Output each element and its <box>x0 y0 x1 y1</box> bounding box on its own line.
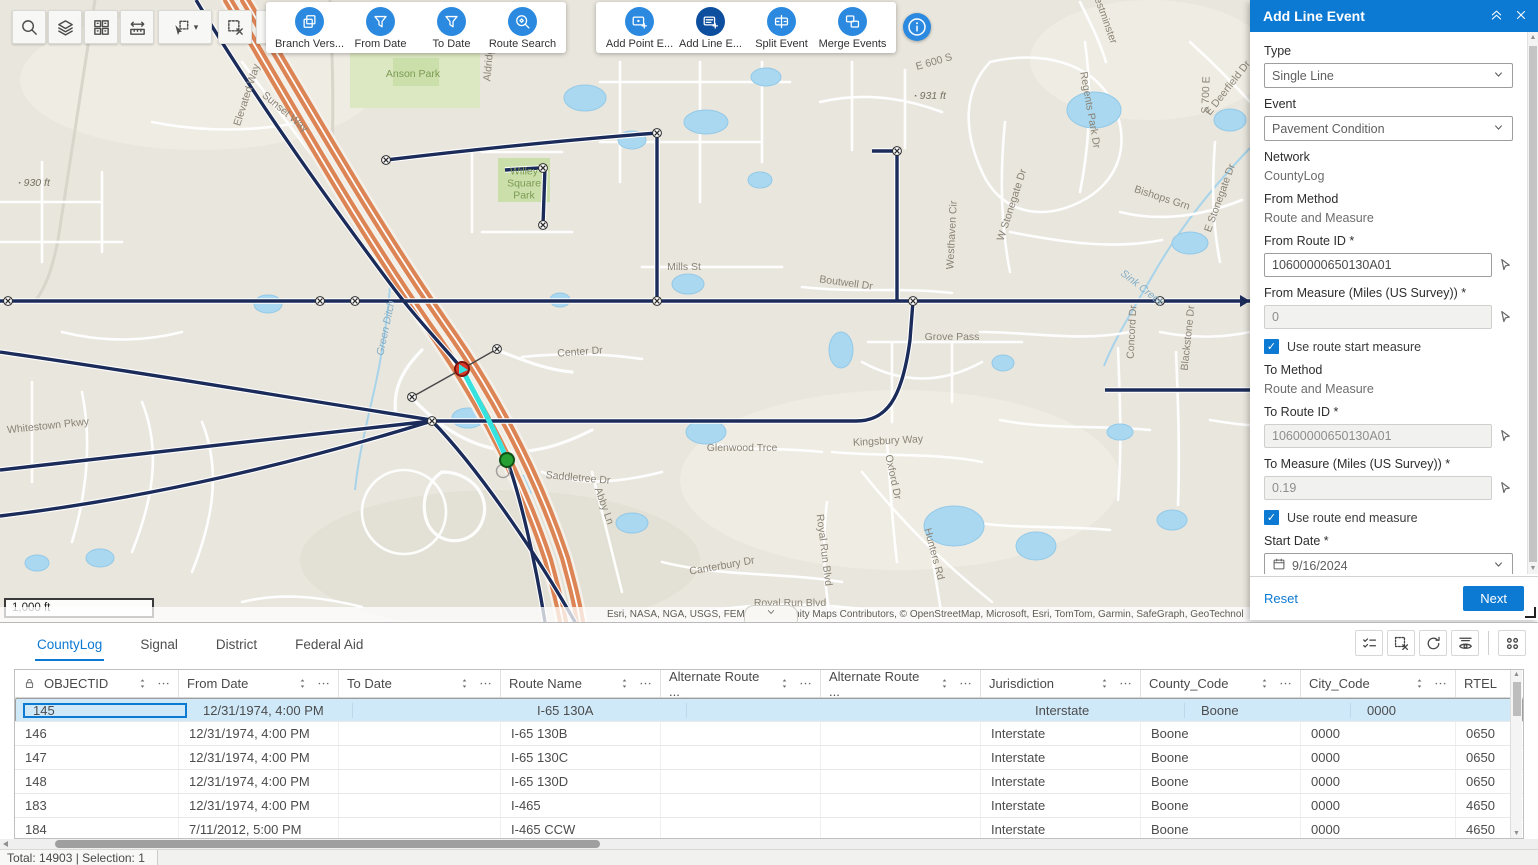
sort-icon <box>136 677 149 690</box>
panel-body: Type Single Line Event Pavement Conditio… <box>1250 32 1527 574</box>
chevron-down-icon <box>1492 121 1505 137</box>
sort-icon <box>618 677 631 690</box>
map-region[interactable]: Elevated WaySunset WayAnson ParkWilley S… <box>0 0 1250 622</box>
from-measure-input[interactable] <box>1264 305 1492 329</box>
tab-countylog[interactable]: CountyLog <box>35 625 104 661</box>
table-cell[interactable] <box>821 818 981 839</box>
table-toolbar <box>1355 630 1526 656</box>
pointer-icon <box>1497 480 1513 496</box>
table-cell[interactable] <box>661 818 821 839</box>
event-toolbar: Add Point E...Add Line E...Split EventMe… <box>596 2 896 53</box>
table-cell[interactable]: 148 <box>15 770 179 793</box>
add-line-e-button[interactable]: Add Line E... <box>675 7 746 50</box>
network-value: CountyLog <box>1264 169 1513 183</box>
table-cell[interactable]: I-65 130B <box>501 722 661 745</box>
table-cell[interactable]: 12/31/1974, 4:00 PM <box>179 722 339 745</box>
table-cell[interactable] <box>821 722 981 745</box>
table-horizontal-scrollbar[interactable] <box>0 839 1538 849</box>
layers-button[interactable] <box>48 10 82 44</box>
to-route-id-input[interactable] <box>1264 424 1492 448</box>
from-method-label: From Method <box>1264 192 1513 206</box>
reset-link[interactable]: Reset <box>1264 591 1298 606</box>
table-cell[interactable]: 147 <box>15 746 179 769</box>
tab-district[interactable]: District <box>214 625 259 661</box>
table-cell[interactable]: 12/31/1974, 4:00 PM <box>179 770 339 793</box>
add-point-event-icon <box>631 13 648 30</box>
branch-vers-button[interactable]: Branch Vers... <box>274 7 345 50</box>
to-method-label: To Method <box>1264 363 1513 377</box>
route-end-marker[interactable] <box>500 453 514 467</box>
table-cell[interactable]: Interstate <box>981 794 1141 817</box>
table-row[interactable]: 14712/31/1974, 4:00 PMI-65 130CInterstat… <box>15 746 1523 770</box>
table-cell[interactable]: 0000 <box>1301 818 1456 839</box>
add-line-event-icon <box>702 13 719 30</box>
layers-icon <box>56 18 75 37</box>
table-cell[interactable]: 12/31/1974, 4:00 PM <box>179 746 339 769</box>
table-body: 14512/31/1974, 4:00 PMI-65 130AInterstat… <box>15 698 1523 839</box>
table-cell[interactable]: 184 <box>15 818 179 839</box>
table-row[interactable]: 14612/31/1974, 4:00 PMI-65 130BInterstat… <box>15 722 1523 746</box>
caret-down-icon: ▾ <box>194 22 199 33</box>
clear-selection-button[interactable] <box>218 10 252 44</box>
close-icon <box>1514 8 1528 22</box>
clear-table-selection-icon <box>1393 635 1410 652</box>
use-route-end-measure-row: Use route end measure <box>1264 510 1513 525</box>
table-cell[interactable]: 0000 <box>1301 770 1456 793</box>
panel-title: Add Line Event <box>1263 8 1365 24</box>
use-route-start-measure-checkbox[interactable] <box>1264 339 1279 354</box>
next-button[interactable]: Next <box>1463 586 1524 611</box>
table-vscroll-thumb[interactable] <box>1513 682 1521 716</box>
from-date-filter-icon <box>372 13 389 30</box>
table-cell[interactable]: Boone <box>1191 703 1351 718</box>
collapse-icon <box>1489 7 1504 22</box>
branch-versions-icon <box>301 13 318 30</box>
collapse-panel-icon[interactable] <box>1489 7 1504 25</box>
dots-icon <box>1279 677 1292 690</box>
select-button[interactable]: ▾ <box>158 10 212 44</box>
chevron-down-icon <box>1492 68 1505 81</box>
add-point-e-button[interactable]: Add Point E... <box>604 7 675 50</box>
column-header-county-code[interactable]: County_Code <box>1141 670 1301 697</box>
table-cell[interactable] <box>339 746 501 769</box>
sort-icon <box>1098 677 1111 690</box>
select-icon <box>172 18 191 37</box>
sort-icon <box>458 677 471 690</box>
map-canvas[interactable] <box>0 0 1250 622</box>
table-row[interactable]: 18312/31/1974, 4:00 PMI-465InterstateBoo… <box>15 794 1523 818</box>
type-label: Type <box>1264 44 1513 58</box>
table-cell[interactable] <box>661 770 821 793</box>
fields-visibility-button[interactable] <box>1451 630 1479 656</box>
options-grid-icon <box>1504 635 1521 652</box>
start-date-label: Start Date * <box>1264 534 1513 548</box>
from-route-id-input[interactable] <box>1264 253 1492 277</box>
table-cell[interactable]: 12/31/1974, 4:00 PM <box>179 794 339 817</box>
measure-button[interactable] <box>120 10 154 44</box>
route-search-button[interactable]: Route Search <box>487 7 558 50</box>
route-search-icon <box>514 13 531 30</box>
table-cell[interactable]: Interstate <box>981 746 1141 769</box>
to-date-button[interactable]: To Date <box>416 7 487 50</box>
to-method-value: Route and Measure <box>1264 382 1513 396</box>
column-header-to-date[interactable]: To Date <box>339 670 501 697</box>
refresh-icon <box>1425 635 1442 652</box>
route-start-marker[interactable] <box>455 362 469 376</box>
table-cell[interactable]: I-465 CCW <box>501 818 661 839</box>
merge-events-icon <box>844 13 861 30</box>
grid-button[interactable] <box>84 10 118 44</box>
sort-icon <box>1413 677 1426 690</box>
table-cell[interactable] <box>821 746 981 769</box>
dots-icon <box>157 677 170 690</box>
table-cell[interactable] <box>661 746 821 769</box>
panel-footer: Reset Next <box>1250 576 1538 620</box>
pointer-icon <box>1497 257 1513 273</box>
table-tabs: CountyLogSignalDistrictFederal Aid <box>0 623 1538 663</box>
use-route-end-measure-checkbox[interactable] <box>1264 510 1279 525</box>
use-route-start-measure-label: Use route start measure <box>1287 340 1421 354</box>
table-cell[interactable] <box>821 770 981 793</box>
hscroll-left-arrow-icon <box>3 841 8 847</box>
dots-icon <box>799 677 812 690</box>
split-event-button[interactable]: Split Event <box>746 7 817 50</box>
filter-toolbar: Branch Vers...From DateTo DateRoute Sear… <box>266 2 566 53</box>
pick-from-route-icon[interactable] <box>1497 257 1513 273</box>
table-cell[interactable] <box>339 818 501 839</box>
table-cell[interactable] <box>339 770 501 793</box>
dots-icon <box>479 677 492 690</box>
table-vertical-scrollbar[interactable]: ▲ ▼ <box>1510 670 1522 838</box>
to-measure-label: To Measure (Miles (US Survey)) * <box>1264 457 1513 471</box>
pointer-icon <box>1497 309 1513 325</box>
lock-icon <box>23 677 36 690</box>
table-cell[interactable] <box>821 794 981 817</box>
sort-icon <box>1258 677 1271 690</box>
table-cell[interactable]: I-65 130A <box>527 703 687 718</box>
table-cell[interactable]: Boone <box>1141 722 1301 745</box>
info-icon <box>907 17 927 37</box>
network-label: Network <box>1264 150 1513 164</box>
column-header-jurisdiction[interactable]: Jurisdiction <box>981 670 1141 697</box>
to-date-filter-icon <box>443 13 460 30</box>
dots-icon <box>1434 677 1447 690</box>
table-cell[interactable] <box>339 794 501 817</box>
chevron-down-icon <box>765 606 777 618</box>
table-cell[interactable]: Interstate <box>981 770 1141 793</box>
toolbar-divider <box>1488 631 1489 655</box>
table-row[interactable]: 14512/31/1974, 4:00 PMI-65 130AInterstat… <box>15 698 1523 722</box>
event-label: Event <box>1264 97 1513 111</box>
info-button[interactable] <box>903 13 931 41</box>
dots-icon <box>1119 677 1132 690</box>
column-header-from-date[interactable]: From Date <box>179 670 339 697</box>
close-panel-icon[interactable] <box>1514 8 1528 25</box>
panel-scrollbar-thumb[interactable] <box>1529 46 1537 562</box>
table-cell[interactable]: 0000 <box>1301 794 1456 817</box>
chevron-down-icon <box>1492 558 1505 571</box>
table-header: OBJECTIDFrom DateTo DateRoute NameAltern… <box>15 670 1523 698</box>
from-route-id-label: From Route ID * <box>1264 234 1513 248</box>
dots-icon <box>317 677 330 690</box>
column-header-city-code[interactable]: City_Code <box>1301 670 1456 697</box>
table-cell[interactable]: 0000 <box>1301 722 1456 745</box>
table-row[interactable]: 1847/11/2012, 5:00 PMI-465 CCWInterstate… <box>15 818 1523 839</box>
table-cell[interactable]: Interstate <box>981 818 1141 839</box>
table-cell[interactable]: Interstate <box>981 722 1141 745</box>
table-row[interactable]: 14812/31/1974, 4:00 PMI-65 130DInterstat… <box>15 770 1523 794</box>
from-measure-label: From Measure (Miles (US Survey)) * <box>1264 286 1513 300</box>
table-cell[interactable]: 146 <box>15 722 179 745</box>
table-hscroll-thumb[interactable] <box>55 840 600 848</box>
type-select[interactable]: Single Line <box>1264 63 1513 88</box>
table-cell[interactable] <box>661 722 821 745</box>
clear-table-selection-button[interactable] <box>1387 630 1415 656</box>
table-cell[interactable]: I-465 <box>501 794 661 817</box>
split-event-icon <box>773 13 790 30</box>
chevron-down-icon <box>1492 68 1505 84</box>
dots-icon <box>959 677 972 690</box>
table-cell[interactable] <box>661 794 821 817</box>
from-method-value: Route and Measure <box>1264 211 1513 225</box>
column-header-route-name[interactable]: Route Name <box>501 670 661 697</box>
table-cell[interactable]: Boone <box>1141 746 1301 769</box>
table-cell[interactable]: 0000 <box>1301 746 1456 769</box>
table-cell[interactable]: 183 <box>15 794 179 817</box>
panel-scrollbar[interactable]: ▲ ▼ <box>1527 32 1538 574</box>
chevron-down-icon <box>1492 558 1505 574</box>
pick-to-route-icon[interactable] <box>1497 428 1513 444</box>
grid-icon <box>92 18 111 37</box>
merge-events-button[interactable]: Merge Events <box>817 7 888 50</box>
to-measure-input[interactable] <box>1264 476 1492 500</box>
use-route-end-measure-label: Use route end measure <box>1287 511 1418 525</box>
table-cell[interactable]: 145 <box>23 703 187 718</box>
fields-visibility-icon <box>1457 635 1474 652</box>
panel-header: Add Line Event <box>1250 0 1538 32</box>
attribute-table-panel: CountyLogSignalDistrictFederal Aid OBJEC… <box>0 622 1538 865</box>
column-header-alternate-route[interactable]: Alternate Route ... <box>821 670 981 697</box>
table-cell[interactable] <box>339 722 501 745</box>
chevron-down-icon <box>1492 121 1505 134</box>
search-icon <box>20 18 39 37</box>
tab-signal[interactable]: Signal <box>138 625 180 661</box>
collapse-map-chevron[interactable] <box>744 605 798 622</box>
table-cell[interactable]: 0000 <box>1357 703 1512 718</box>
show-selection-icon <box>1361 635 1378 652</box>
sort-icon <box>778 677 791 690</box>
pick-to-measure-icon[interactable] <box>1497 480 1513 496</box>
pointer-icon <box>1497 428 1513 444</box>
column-header-alternate-route[interactable]: Alternate Route ... <box>661 670 821 697</box>
table-status-bar: Total: 14903 | Selection: 1 <box>0 849 1538 865</box>
clear-selection-icon <box>226 18 245 37</box>
attribute-table: OBJECTIDFrom DateTo DateRoute NameAltern… <box>14 669 1524 839</box>
table-cell[interactable]: I-65 130D <box>501 770 661 793</box>
sort-icon <box>938 677 951 690</box>
refresh-button[interactable] <box>1419 630 1447 656</box>
search-button[interactable] <box>12 10 46 44</box>
table-cell[interactable]: Boone <box>1141 794 1301 817</box>
calendar-icon <box>1272 557 1286 574</box>
add-line-event-panel: Add Line Event Type Single Line Event Pa… <box>1250 0 1538 620</box>
table-cell[interactable]: 7/11/2012, 5:00 PM <box>179 818 339 839</box>
column-header-objectid[interactable]: OBJECTID <box>15 670 179 697</box>
show-selection-button[interactable] <box>1355 630 1383 656</box>
measure-icon <box>128 18 147 37</box>
sort-icon <box>296 677 309 690</box>
table-cell[interactable]: Boone <box>1141 818 1301 839</box>
table-cell[interactable]: 12/31/1974, 4:00 PM <box>193 703 353 718</box>
use-route-start-measure-row: Use route start measure <box>1264 339 1513 354</box>
dots-icon <box>639 677 652 690</box>
table-status-text: Total: 14903 | Selection: 1 <box>0 850 158 865</box>
start-date-picker[interactable]: 9/16/2024 <box>1264 553 1513 574</box>
pick-from-measure-icon[interactable] <box>1497 309 1513 325</box>
options-grid-button[interactable] <box>1498 630 1526 656</box>
calendar-icon <box>1272 557 1286 571</box>
tab-federal-aid[interactable]: Federal Aid <box>293 625 365 661</box>
panel-resize-handle[interactable] <box>1524 606 1536 618</box>
table-cell[interactable]: Interstate <box>1025 703 1185 718</box>
from-date-button[interactable]: From Date <box>345 7 416 50</box>
event-editor-app: Elevated WaySunset WayAnson ParkWilley S… <box>0 0 1538 865</box>
table-cell[interactable]: I-65 130C <box>501 746 661 769</box>
table-cell[interactable]: Boone <box>1141 770 1301 793</box>
to-route-id-label: To Route ID * <box>1264 405 1513 419</box>
map-attribution: Esri, NASA, NGA, USGS, FEMA | Community … <box>0 607 1250 622</box>
event-select[interactable]: Pavement Condition <box>1264 116 1513 141</box>
